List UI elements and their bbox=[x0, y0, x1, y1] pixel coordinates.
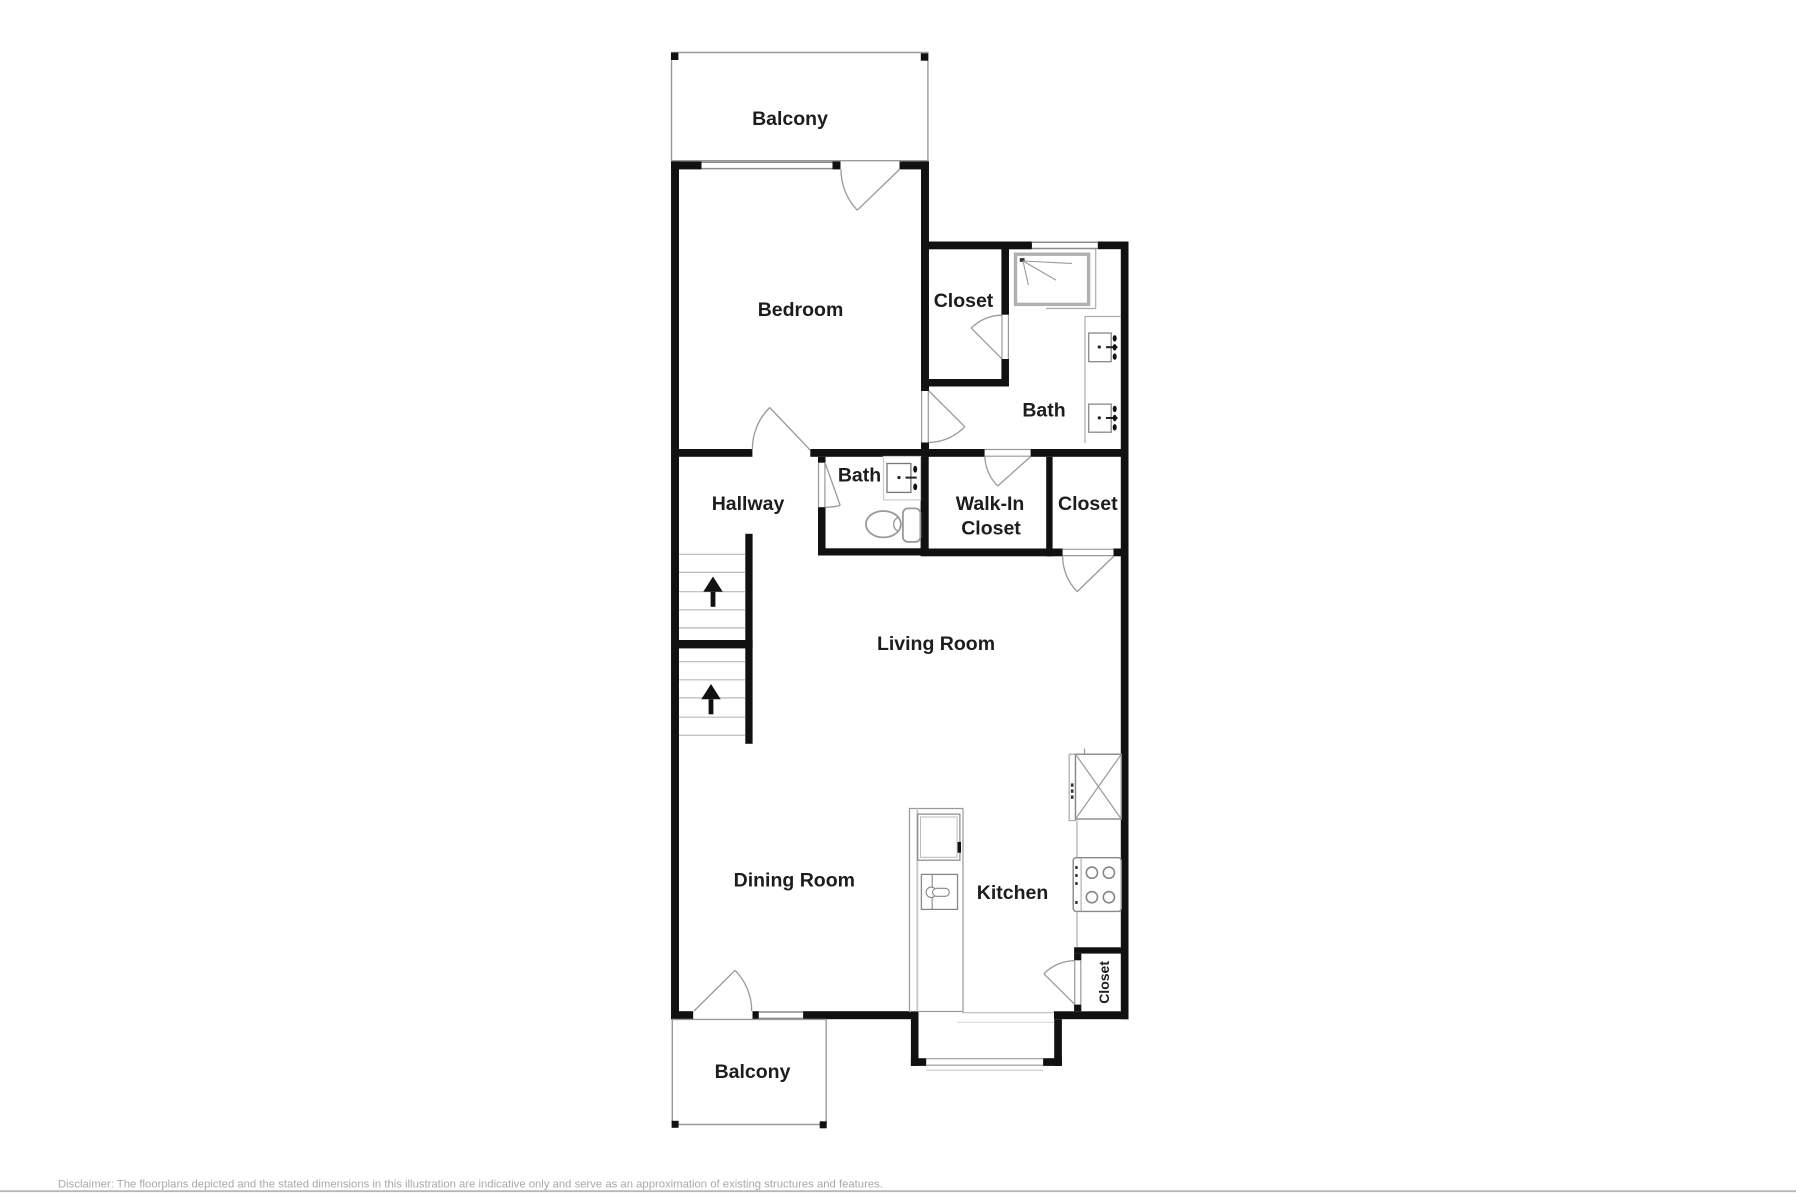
svg-text:Bath: Bath bbox=[838, 465, 881, 487]
svg-text:Dining Room: Dining Room bbox=[734, 870, 855, 892]
svg-text:Bedroom: Bedroom bbox=[758, 299, 844, 321]
svg-text:Walk-In: Walk-In bbox=[956, 493, 1025, 515]
svg-text:Closet: Closet bbox=[1058, 493, 1118, 515]
svg-text:Closet: Closet bbox=[934, 290, 994, 312]
svg-text:Hallway: Hallway bbox=[712, 493, 785, 515]
svg-text:Disclaimer: The floorplans dep: Disclaimer: The floorplans depicted and … bbox=[58, 1179, 883, 1191]
svg-text:Living Room: Living Room bbox=[877, 633, 995, 655]
svg-text:Closet: Closet bbox=[1096, 961, 1112, 1004]
svg-text:Bath: Bath bbox=[1022, 400, 1065, 422]
svg-text:Kitchen: Kitchen bbox=[977, 882, 1049, 904]
svg-text:Closet: Closet bbox=[961, 518, 1021, 540]
svg-text:Balcony: Balcony bbox=[715, 1061, 791, 1083]
svg-text:Balcony: Balcony bbox=[752, 108, 828, 130]
